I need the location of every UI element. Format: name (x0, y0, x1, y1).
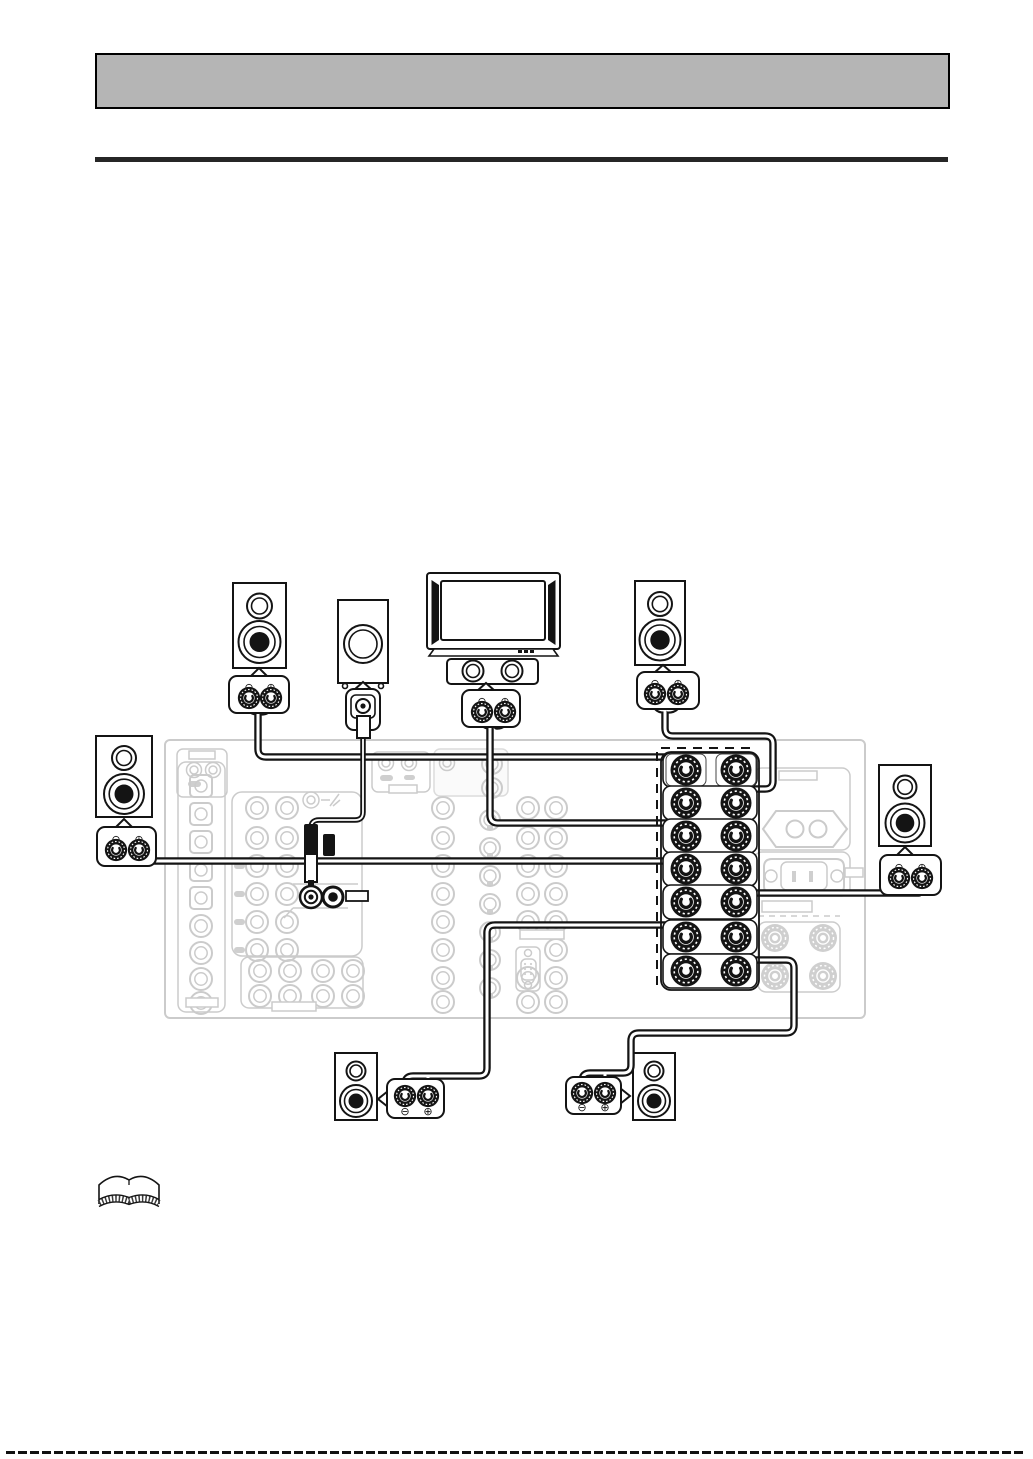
page-edge-dashed-line (6, 1451, 1026, 1454)
cable-clip (323, 834, 335, 856)
front-left-terminal-callout: ⊖ ⊕ (229, 668, 289, 713)
tv-left-grille (432, 580, 440, 645)
subwoofer-rca-plug (300, 824, 368, 908)
terminal-row-5 (663, 885, 757, 919)
surround-right-speaker (879, 765, 931, 846)
surround-right-terminal-callout: ⊖ ⊕ (880, 847, 941, 895)
rca-plug-barrel (357, 716, 370, 738)
subwoofer-terminal-callout (346, 682, 380, 738)
plus-symbol: ⊕ (423, 1105, 432, 1118)
front-left-speaker (233, 583, 286, 668)
terminal-row-7 (663, 954, 757, 988)
surround-left-speaker-cable (116, 853, 735, 870)
center-terminal-callout: ⊖ ⊕ (462, 683, 520, 727)
plus-symbol: ⊕ (600, 1101, 609, 1114)
terminal-row-6 (663, 920, 757, 954)
front-right-speaker (635, 581, 685, 665)
speaker-terminal-block (657, 748, 759, 990)
terminal-row-4 (663, 852, 757, 886)
surround-left-speaker (96, 736, 152, 817)
terminal-row-1 (663, 753, 757, 787)
multichannel-input-jacks (241, 957, 364, 1008)
open-book-icon (99, 1176, 159, 1206)
front-right-terminal-callout: ⊖ ⊕ (637, 665, 699, 709)
minus-symbol: ⊖ (400, 1105, 409, 1118)
subwoofer (338, 600, 388, 689)
manual-page: ⊖ ⊕ ⊖ ⊕ ⊖ ⊕ (0, 0, 1033, 1459)
terminal-row-3 (663, 819, 757, 853)
ground-terminal (303, 792, 340, 808)
tv-monitor (427, 573, 560, 656)
tv-base (429, 649, 558, 656)
terminal-row-2 (663, 786, 757, 820)
tv-right-grille (548, 580, 556, 645)
digital-input-column (178, 762, 225, 1014)
receiver-rear-panel (165, 740, 865, 1018)
ac-outlet (754, 768, 850, 850)
surround-back-left-terminal-callout: ⊖ ⊕ (378, 1079, 444, 1118)
minus-symbol: ⊖ (577, 1101, 586, 1114)
wiring-diagram: ⊖ ⊕ ⊖ ⊕ ⊖ ⊕ (0, 0, 1033, 1459)
video-audio-jack-grid (432, 797, 567, 1013)
surround-back-right-terminal-callout: ⊖ ⊕ (566, 1077, 630, 1114)
surround-left-terminal-callout: ⊖ ⊕ (97, 819, 156, 866)
surround-back-left-speaker (335, 1053, 377, 1120)
surround-back-right-speaker (633, 1053, 675, 1120)
extra-speaker-terminals (758, 916, 840, 992)
center-speaker (447, 659, 538, 684)
